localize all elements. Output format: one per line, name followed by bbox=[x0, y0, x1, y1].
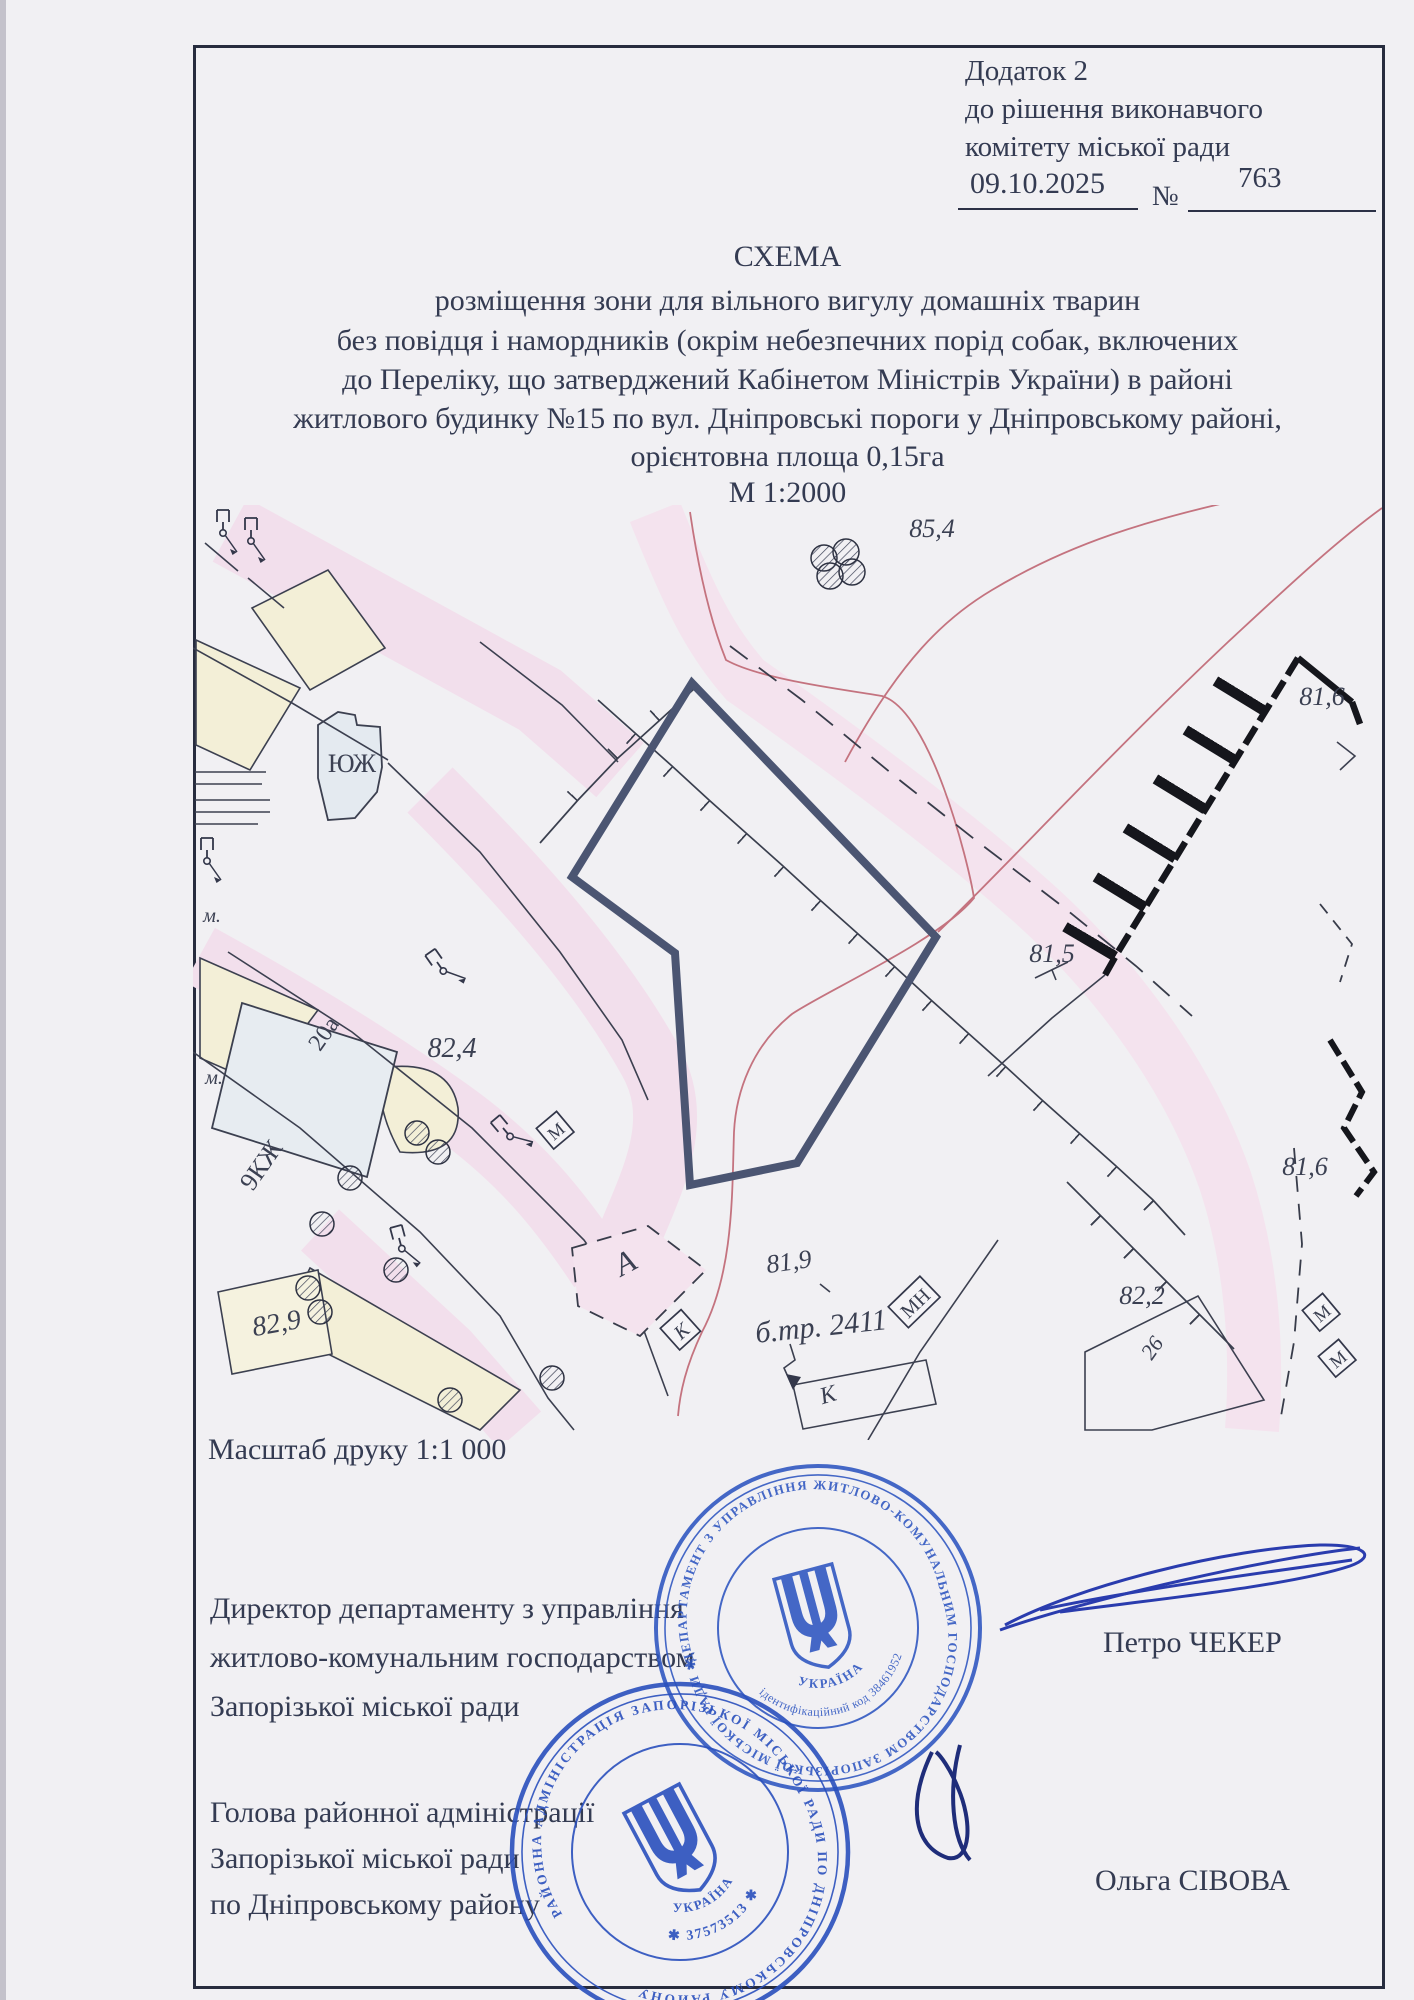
map-label: К bbox=[816, 1380, 841, 1410]
header-decision-line: до рішення виконавчого bbox=[965, 90, 1263, 128]
map-label: б.тр. 2411 bbox=[754, 1303, 889, 1350]
number-underline bbox=[1188, 210, 1376, 212]
date-underline bbox=[958, 208, 1138, 210]
map-label: 81,6 bbox=[1299, 682, 1345, 711]
number-sign: № bbox=[1152, 181, 1179, 213]
doc-title-line3: без повідця і намордників (окрім небезпе… bbox=[193, 324, 1382, 358]
doc-title-line5: житлового будинку №15 по вул. Дніпровськ… bbox=[193, 402, 1382, 436]
doc-title: СХЕМА bbox=[193, 240, 1382, 274]
site-plan-map: 85,481,681,582,420а9КЖЮЖ82,9АК81,9б.тр. … bbox=[193, 505, 1382, 1440]
map-label: м. bbox=[202, 905, 221, 927]
stamp2-trident-emblem bbox=[624, 1783, 728, 1904]
map-bold-building-line bbox=[1330, 1040, 1374, 1196]
doc-title-line4: до Переліку, що затверджений Кабінетом М… bbox=[193, 363, 1382, 397]
map-arrowhead bbox=[786, 1374, 801, 1390]
map-label: 81,5 bbox=[1029, 939, 1075, 968]
decision-number: 763 bbox=[1238, 162, 1282, 195]
map-label: 82,2 bbox=[1119, 1281, 1165, 1310]
map-label: ЮЖ bbox=[328, 749, 377, 778]
header-appendix: Додаток 2 bbox=[965, 52, 1088, 90]
stamp1-trident-emblem bbox=[774, 1563, 858, 1675]
stamp1-country: УКРАЇНА bbox=[793, 1656, 869, 1698]
map-lot bbox=[196, 640, 300, 770]
doc-title-area: орієнтовна площа 0,15га bbox=[193, 440, 1382, 474]
map-label: 26 bbox=[1135, 1332, 1168, 1364]
doc-title-line2: розміщення зони для вільного вигулу дома… bbox=[193, 284, 1382, 318]
signature-sivova bbox=[917, 1745, 970, 1860]
map-label: м. bbox=[204, 1067, 223, 1089]
svg-text:УКРАЇНА: УКРАЇНА bbox=[793, 1656, 869, 1698]
map-bold-building-line bbox=[1105, 658, 1298, 975]
scanned-document-page: Додаток 2 до рішення виконавчого комітет… bbox=[0, 0, 1414, 2000]
map-label: 82,4 bbox=[428, 1033, 477, 1064]
map-label: 85,4 bbox=[909, 514, 955, 543]
stamps-and-signatures: ДЕПАРТАМЕНТ З УПРАВЛІННЯ ЖИТЛОВО-КОМУНАЛ… bbox=[193, 1440, 1382, 2000]
signature-cheker bbox=[1000, 1545, 1365, 1630]
decision-date: 09.10.2025 bbox=[970, 167, 1105, 201]
map-label: 81,9 bbox=[764, 1244, 813, 1279]
map-label: 81,6 bbox=[1282, 1152, 1328, 1181]
header-committee-line: комітету міської ради bbox=[965, 128, 1230, 166]
